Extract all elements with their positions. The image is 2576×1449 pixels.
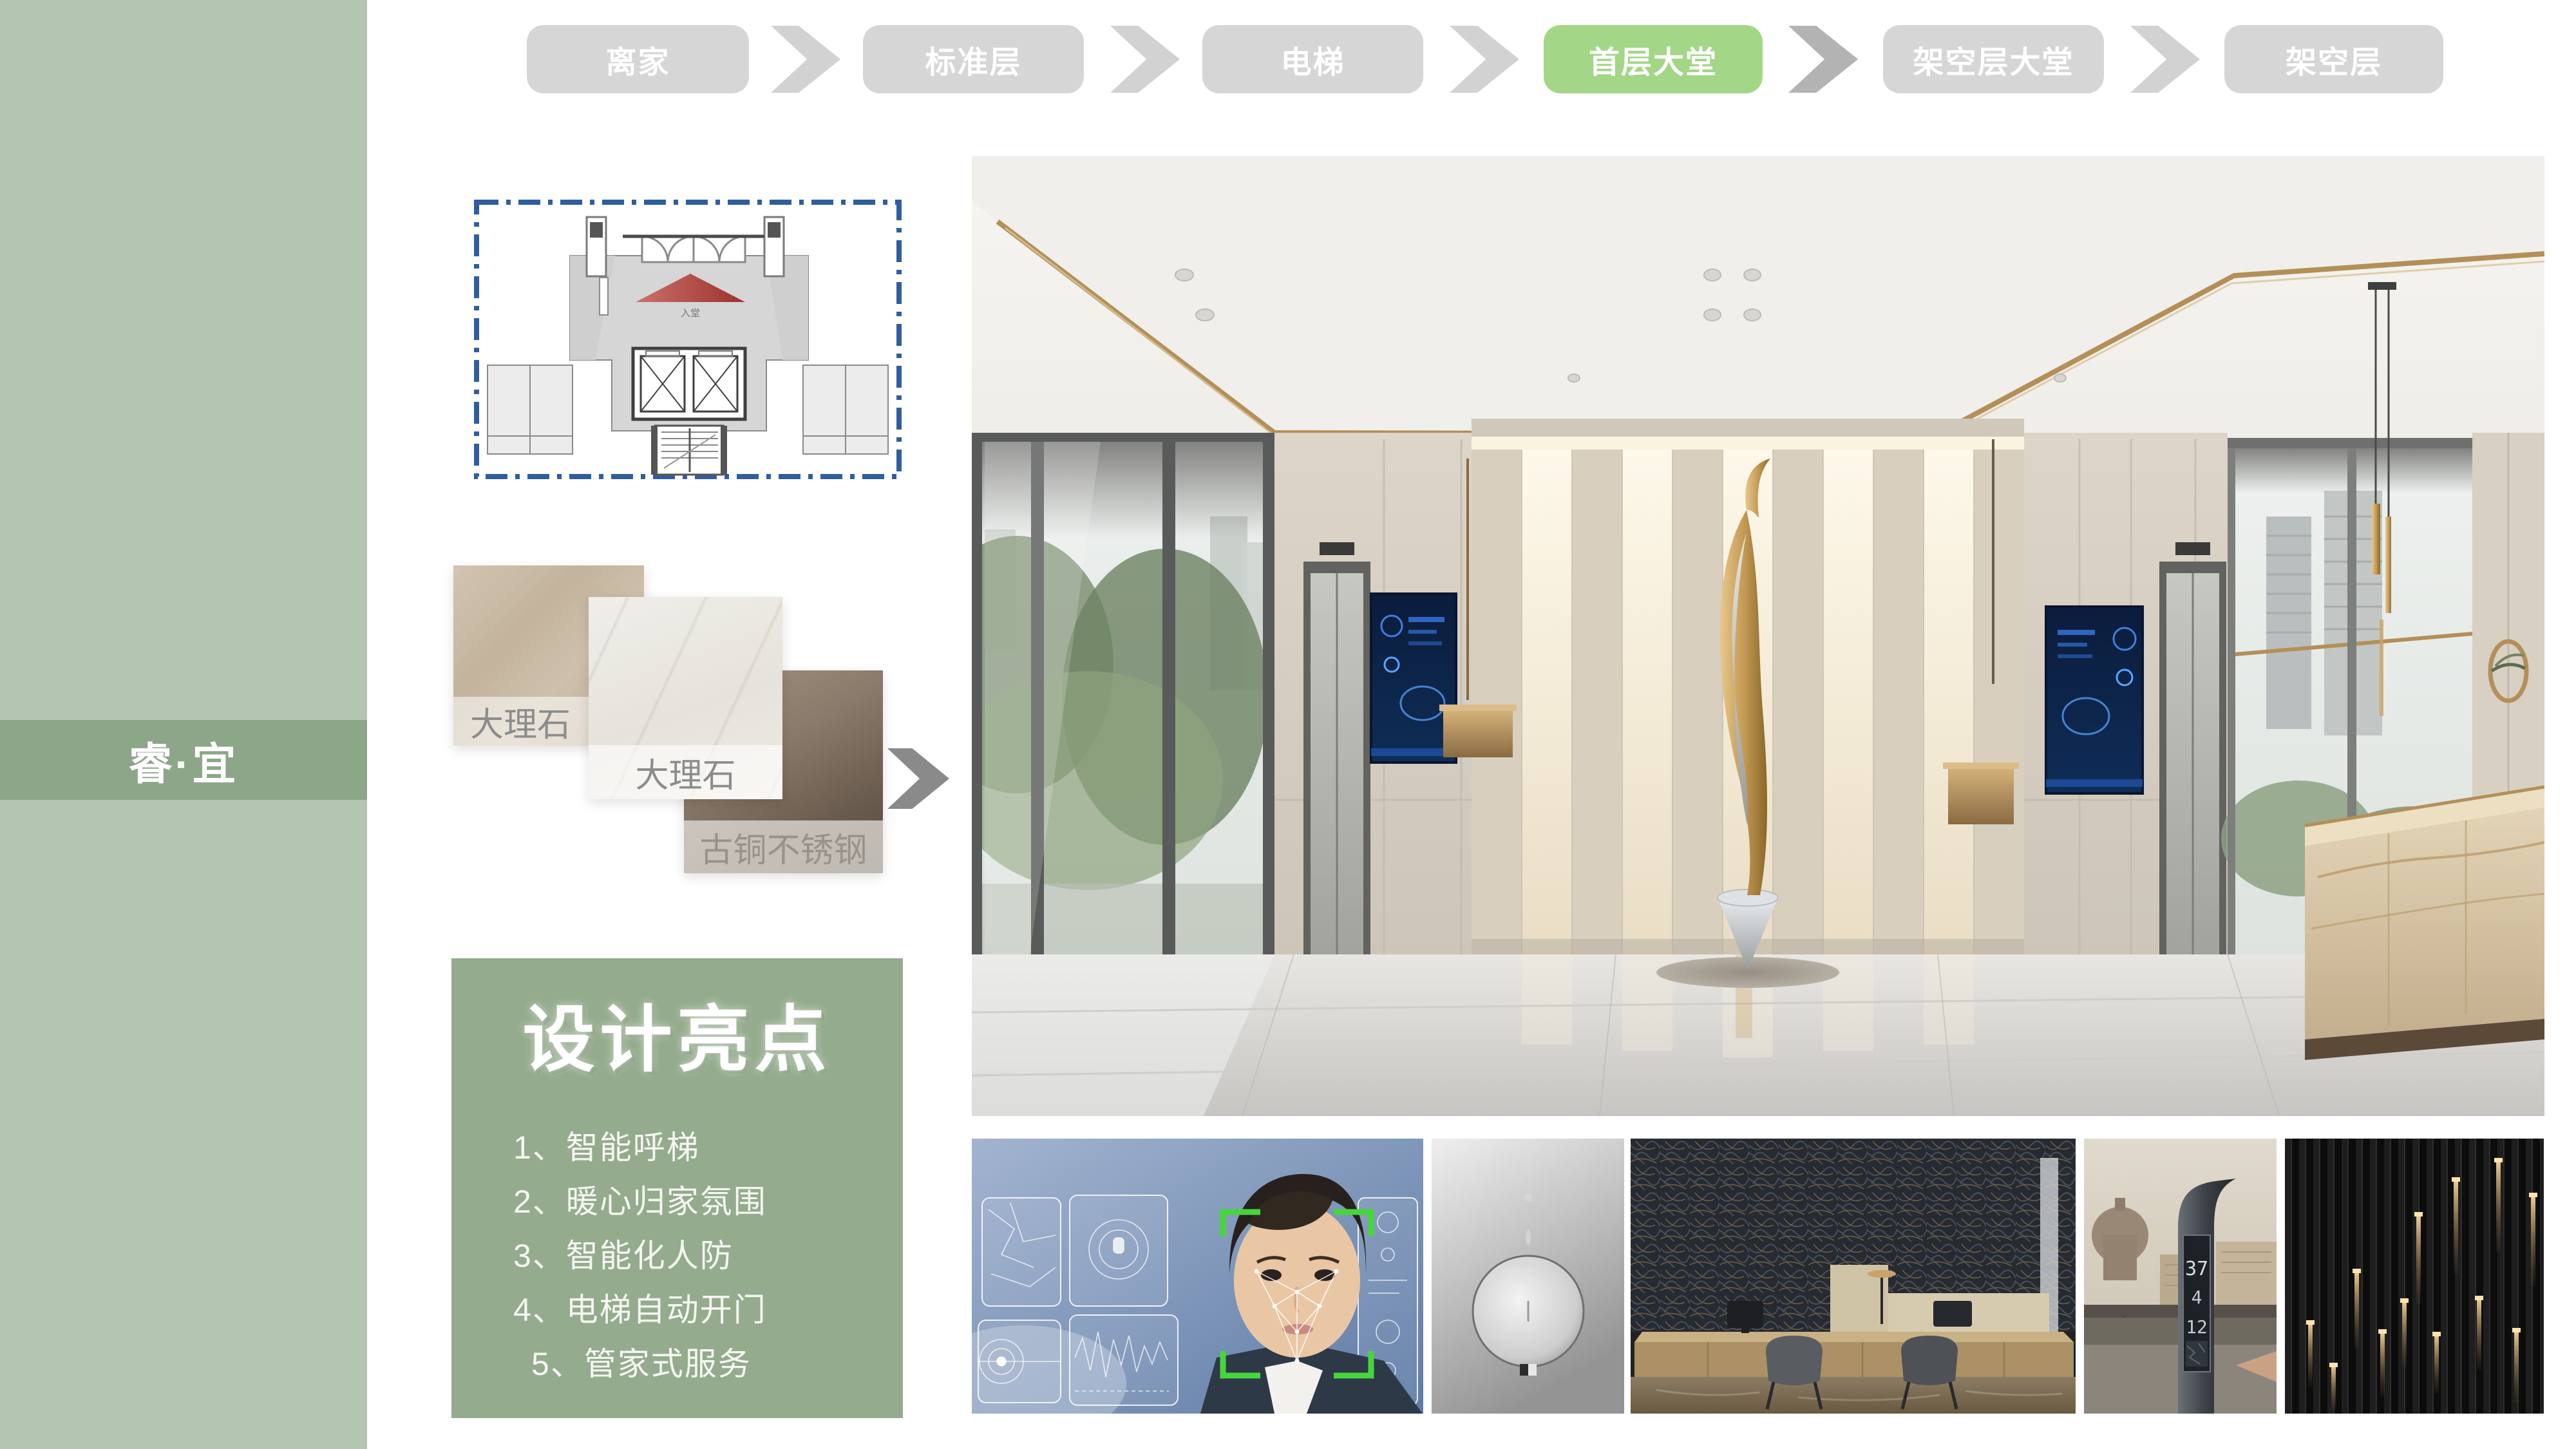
- flow-step-stilt-lobby[interactable]: 架空层大堂: [1883, 25, 2104, 93]
- brand-logo: 睿·宜: [129, 728, 239, 792]
- window-left: [972, 433, 1274, 954]
- design-highlights-list: 1、智能呼梯 2、暖心归家氛围 3、智能化人防 4、电梯自动开门 5、管家式服务: [451, 1121, 903, 1391]
- flow-step-elevator[interactable]: 电梯: [1202, 25, 1423, 93]
- flow-chevron-icon: [1450, 26, 1519, 93]
- flow-step-standard-floor[interactable]: 标准层: [863, 25, 1084, 93]
- pole-digit: 4: [2192, 1287, 2202, 1308]
- brass-lectern-right: [1943, 762, 2019, 824]
- materials-arrow-icon: [887, 748, 949, 809]
- pole-digit: 12: [2186, 1316, 2208, 1338]
- thumbnail-face-recognition: [972, 1139, 1423, 1414]
- design-highlights-title: 设计亮点: [451, 981, 903, 1086]
- flow-chevron-icon: [1110, 26, 1180, 93]
- brand-band: 睿·宜: [0, 720, 367, 800]
- flow-step-ground-lobby[interactable]: 首层大堂: [1544, 25, 1763, 93]
- plan-elevators: [633, 348, 745, 419]
- thumbnail-reception-desk: [1631, 1139, 2076, 1414]
- plan-stairs: [651, 426, 727, 475]
- reception-counter: [2305, 787, 2544, 1060]
- highlight-item: 2、暖心归家氛围: [513, 1175, 903, 1229]
- thumbnail-smart-info-pole: 37 4 12: [2084, 1139, 2277, 1414]
- highlight-item: 3、智能化人防: [513, 1229, 903, 1283]
- material-label: 大理石: [589, 745, 782, 799]
- highlight-item: 4、电梯自动开门: [513, 1283, 903, 1337]
- design-highlights-panel: 设计亮点 1、智能呼梯 2、暖心归家氛围 3、智能化人防 4、电梯自动开门 5、…: [451, 958, 903, 1418]
- plan-entrance-doors: [623, 236, 764, 262]
- info-screen-right: [2046, 607, 2143, 793]
- thumbnail-slat-wall-lights: [2285, 1139, 2544, 1414]
- brass-shelf-left: [1439, 705, 1517, 757]
- floor-plan: 入堂: [473, 199, 902, 480]
- highlight-item: 5、管家式服务: [513, 1337, 903, 1391]
- pole-digit: 37: [2185, 1258, 2208, 1280]
- flow-step-stilt-floor[interactable]: 架空层: [2224, 25, 2443, 93]
- plan-entrance-label: 入堂: [681, 308, 700, 319]
- elevator-door-left: [1303, 542, 1370, 954]
- floor-plan-drawing: 入堂: [473, 199, 902, 480]
- thumbnail-metal-dial: [1432, 1139, 1624, 1414]
- plan-reception-board: [600, 278, 608, 315]
- flow-chevron-icon: [771, 26, 840, 93]
- elevator-door-right: [2159, 542, 2226, 954]
- highlight-item: 1、智能呼梯: [513, 1121, 903, 1175]
- material-swatch-white-marble: 大理石: [589, 597, 782, 799]
- material-label: 古铜不锈钢: [684, 820, 883, 873]
- lobby-rendering: [972, 156, 2544, 1116]
- sidebar: 睿·宜: [0, 0, 367, 1449]
- flow-step-leave-home[interactable]: 离家: [527, 25, 749, 93]
- flow-chevron-icon: [1788, 26, 1858, 93]
- flow-chevron-icon: [2130, 26, 2200, 93]
